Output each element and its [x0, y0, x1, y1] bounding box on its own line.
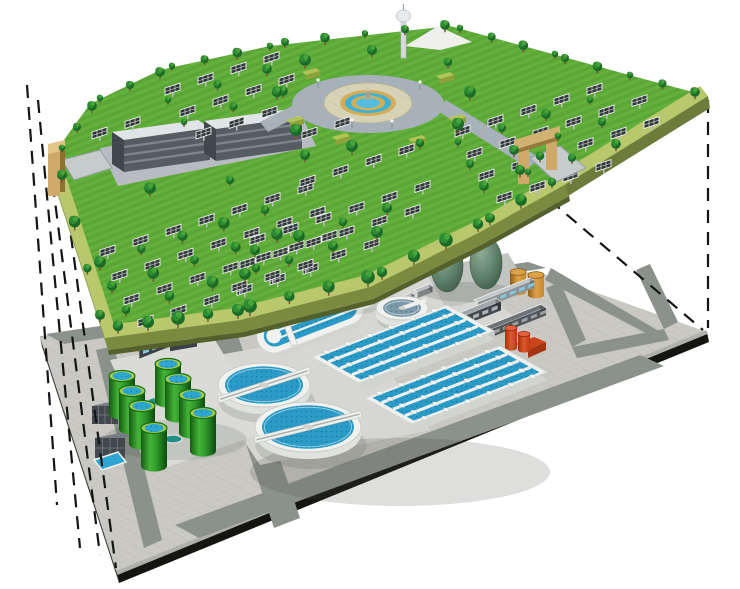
circular-clarifier: [254, 402, 367, 469]
illustration-canvas: [0, 0, 740, 589]
cutaway-illustration: [0, 0, 740, 589]
